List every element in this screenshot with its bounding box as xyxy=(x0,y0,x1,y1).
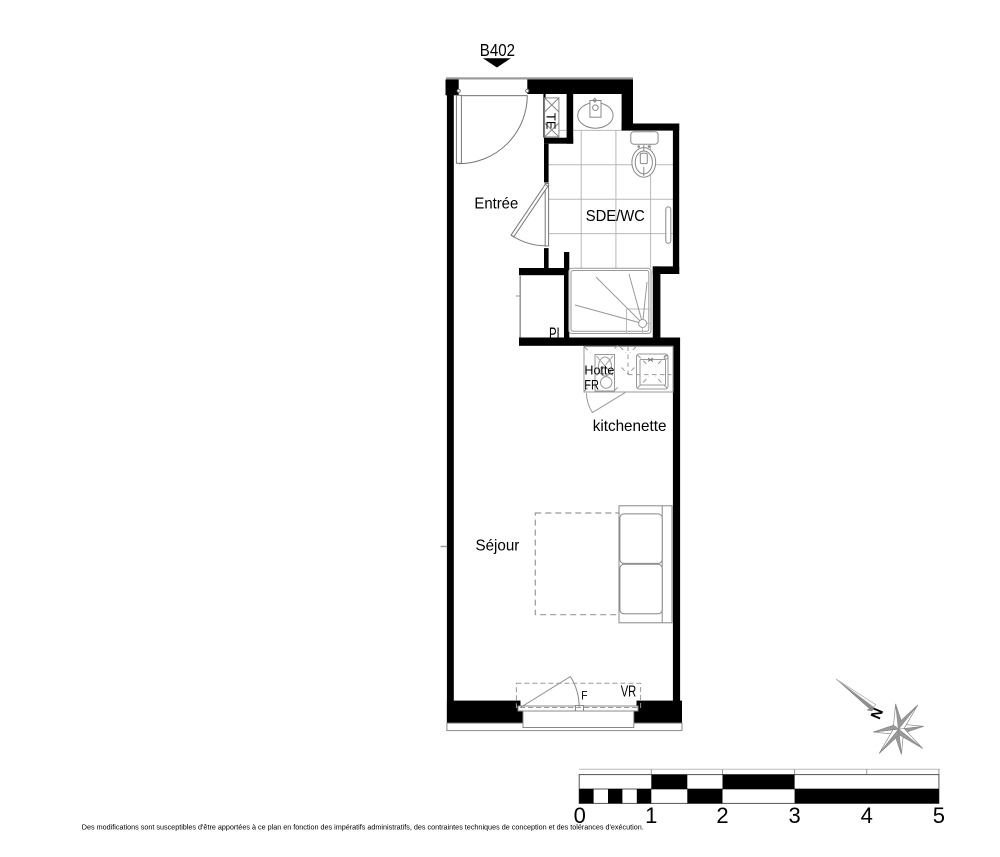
svg-text:F: F xyxy=(581,690,587,703)
svg-text:TE: TE xyxy=(544,113,559,130)
svg-text:2: 2 xyxy=(716,803,728,828)
svg-text:4: 4 xyxy=(861,803,873,828)
svg-text:Entrée: Entrée xyxy=(474,195,518,212)
svg-text:Séjour: Séjour xyxy=(476,538,520,555)
svg-text:Des modifications sont suscept: Des modifications sont susceptibles d'êt… xyxy=(82,825,644,832)
svg-text:FR: FR xyxy=(584,377,599,393)
svg-text:3: 3 xyxy=(788,803,800,828)
svg-text:kitchenette: kitchenette xyxy=(593,418,667,435)
svg-text:B402: B402 xyxy=(480,41,515,60)
svg-text:VR: VR xyxy=(621,682,637,701)
svg-text:1: 1 xyxy=(645,803,657,828)
svg-text:SDE/WC: SDE/WC xyxy=(586,208,645,225)
svg-text:PI: PI xyxy=(549,324,560,344)
svg-text:5: 5 xyxy=(933,803,945,828)
svg-text:Hotte: Hotte xyxy=(584,362,614,377)
